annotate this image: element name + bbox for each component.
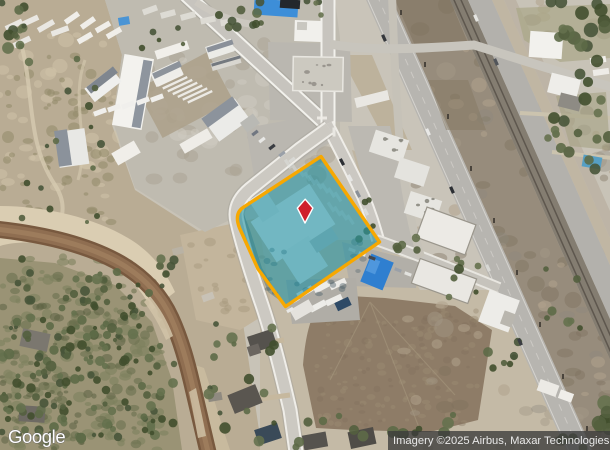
svg-text:Imagery ©2025 Airbus, Maxar Te: Imagery ©2025 Airbus, Maxar Technologies <box>393 435 610 447</box>
svg-text:Google: Google <box>8 426 65 447</box>
